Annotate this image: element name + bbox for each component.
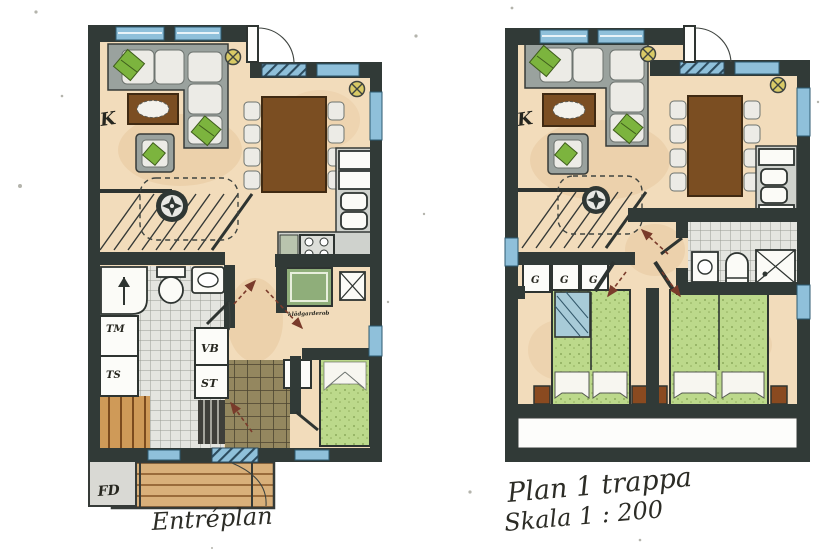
closet-note: klädgarderob xyxy=(288,310,330,318)
toilet xyxy=(726,253,748,284)
bedroom-2 xyxy=(652,290,787,405)
nightstand xyxy=(632,386,647,404)
window xyxy=(148,450,180,460)
window xyxy=(369,326,382,356)
kitchen xyxy=(756,146,797,218)
g-label: G xyxy=(560,275,569,286)
window xyxy=(505,238,518,266)
glazed-door xyxy=(212,448,258,462)
balcony-door xyxy=(684,26,731,62)
floor-plan-sheet: FD xyxy=(0,0,830,555)
hall-wood-floor xyxy=(100,396,150,448)
ts-label: TS xyxy=(106,370,121,381)
window xyxy=(370,92,382,140)
floor-plan-1-trappa: K xyxy=(505,26,810,462)
water-heater: VB xyxy=(195,328,228,365)
washing-machine: TM xyxy=(100,316,138,356)
lamp-symbol xyxy=(350,82,365,97)
window xyxy=(797,285,810,319)
shower xyxy=(756,250,795,283)
lamp-symbol xyxy=(641,47,656,62)
storage-fd: FD xyxy=(89,460,136,506)
toilet xyxy=(157,267,185,303)
entrance-door xyxy=(247,26,294,62)
sink-basin xyxy=(761,187,787,203)
floor-plan-entreplan: FD xyxy=(88,25,382,508)
nightstand xyxy=(534,386,550,404)
washbasin xyxy=(192,267,224,293)
window xyxy=(735,62,779,74)
st-label: ST xyxy=(201,377,218,390)
vb-label: VB xyxy=(201,342,219,355)
washbasin xyxy=(692,252,718,282)
lamp-symbol xyxy=(226,50,241,65)
entry-tile-floor xyxy=(225,360,290,448)
sink-basin xyxy=(761,169,787,185)
bench-radiator xyxy=(198,400,225,444)
fd-label: FD xyxy=(96,482,121,500)
balcony xyxy=(518,418,797,448)
cleaning-closet: ST xyxy=(195,365,228,398)
nightstand xyxy=(771,386,787,404)
bathroom xyxy=(688,222,797,286)
stool xyxy=(340,272,365,300)
g-label: G xyxy=(589,275,598,286)
window xyxy=(295,450,329,460)
glazed-door xyxy=(262,64,306,76)
caption-entreplan: Entréplan xyxy=(150,502,273,536)
coffee-table xyxy=(128,94,178,124)
window xyxy=(317,64,359,76)
dryer: TS xyxy=(100,356,138,396)
window xyxy=(797,88,810,136)
glazed-door xyxy=(680,62,724,74)
sink-basin xyxy=(341,212,367,229)
g-label: G xyxy=(531,275,540,286)
freezer xyxy=(339,171,375,189)
tm-label: TM xyxy=(106,324,125,335)
fridge xyxy=(339,151,375,169)
coffee-table xyxy=(543,94,595,126)
armchair xyxy=(136,134,174,172)
armchair xyxy=(548,134,588,174)
sink-basin xyxy=(341,193,367,210)
fridge xyxy=(759,149,794,165)
floor-plan-drawing: FD xyxy=(0,0,830,555)
lamp-symbol xyxy=(771,78,786,93)
